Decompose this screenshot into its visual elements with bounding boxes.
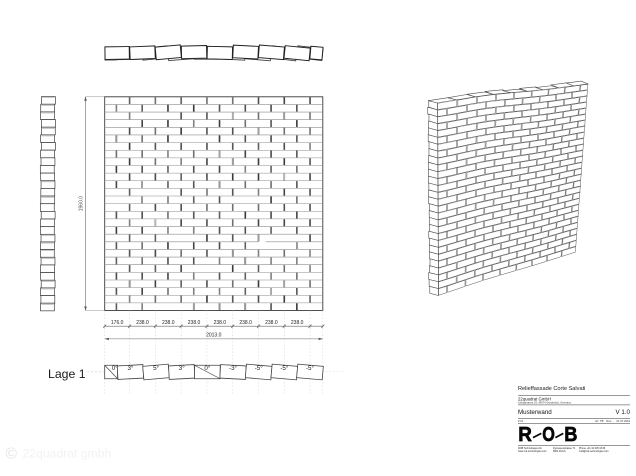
svg-text:238.0: 238.0 xyxy=(239,320,252,326)
svg-text:238.0: 238.0 xyxy=(265,320,278,326)
svg-text:3°: 3° xyxy=(179,365,185,372)
svg-text:www.rob-technologies.com: www.rob-technologies.com xyxy=(518,450,547,453)
svg-text:Liebigstrasse 29, 49074 Osnabr: Liebigstrasse 29, 49074 Osnabrück, Germa… xyxy=(518,401,572,405)
svg-text:1960.0: 1960.0 xyxy=(79,196,85,212)
svg-text:8004 Zürich: 8004 Zürich xyxy=(553,450,566,453)
svg-text:mail@rob-technologies.com: mail@rob-technologies.com xyxy=(579,450,609,453)
svg-text:238.0: 238.0 xyxy=(136,320,149,326)
svg-text:0°: 0° xyxy=(204,365,210,372)
svg-text:-3°: -3° xyxy=(229,365,238,372)
svg-text:R: R xyxy=(518,423,532,446)
svg-text:238.0: 238.0 xyxy=(188,320,201,326)
svg-text:22quadrat gmbh: 22quadrat gmbh xyxy=(23,447,112,461)
svg-text:Lage 1: Lage 1 xyxy=(48,367,86,381)
svg-text:238.0: 238.0 xyxy=(291,320,304,326)
svg-text:O: O xyxy=(542,423,555,446)
svg-text:2013.0: 2013.0 xyxy=(206,333,222,339)
svg-text:176.0: 176.0 xyxy=(111,320,124,326)
svg-text:B: B xyxy=(564,423,577,446)
svg-text:-5°: -5° xyxy=(255,365,264,372)
svg-text:238.0: 238.0 xyxy=(214,320,227,326)
svg-text:Relieffassade Corte Salvati: Relieffassade Corte Salvati xyxy=(518,386,585,392)
svg-text:5°: 5° xyxy=(153,365,159,372)
svg-text:-5°: -5° xyxy=(306,365,315,372)
svg-text:238.0: 238.0 xyxy=(162,320,175,326)
svg-text:©: © xyxy=(6,446,18,463)
svg-text:V 1.0: V 1.0 xyxy=(616,409,631,416)
svg-text:-5°: -5° xyxy=(280,365,289,372)
svg-text:3°: 3° xyxy=(127,365,133,372)
svg-text:Musterwand: Musterwand xyxy=(518,409,552,416)
svg-text:Gz: TB Rev: - 01.07.2016: Gz: TB Rev: - 01.07.2016 xyxy=(595,419,630,423)
